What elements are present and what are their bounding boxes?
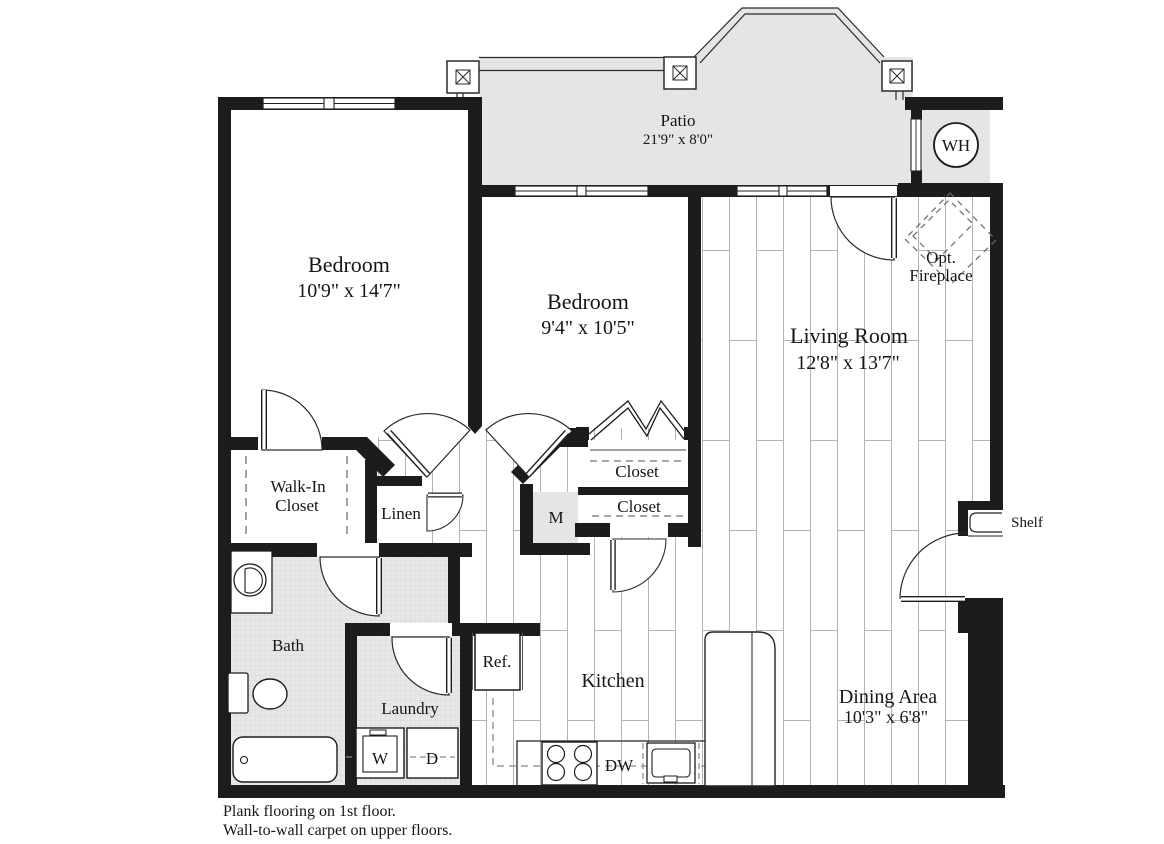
bedroom1-window (263, 98, 395, 109)
peninsula-counter (705, 632, 775, 786)
water-heater-access-panel (911, 119, 921, 171)
footnote-line2: Wall-to-wall carpet on upper floors. (223, 822, 452, 839)
vanity-sink (231, 551, 272, 613)
mechanical-bottom-wall (520, 543, 590, 555)
bath-alcove-right-wall (448, 557, 460, 623)
linen-label: Linen (381, 504, 421, 523)
patio-door-opening (830, 186, 897, 196)
mechanical-left-wall (520, 484, 533, 547)
dining-area-dims: 10'3" x 6'8" (844, 707, 928, 727)
bedroom2-right-wall (688, 197, 701, 447)
dishwasher-label: DW (605, 756, 634, 775)
bifold-right-jamb (684, 427, 697, 440)
kitchen-label: Kitchen (581, 670, 644, 692)
walk-in-closet-right-wall (365, 460, 377, 557)
floor-plan-page: Patio 21'9" x 8'0" Bedroom 10'9" x 14'7"… (0, 0, 1164, 844)
laundry-label: Laundry (381, 699, 439, 718)
patio-label: Patio (661, 111, 696, 130)
bifold-left-jamb (576, 427, 589, 440)
right-exterior-wall-lower (968, 630, 1003, 786)
closet-upper-label: Closet (615, 462, 659, 481)
sink (647, 743, 695, 783)
entry-door-opening (964, 537, 1003, 598)
bathtub (233, 737, 337, 782)
floor-plan-drawing: Patio 21'9" x 8'0" Bedroom 10'9" x 14'7"… (0, 0, 1164, 844)
refrigerator-label: Ref. (483, 652, 512, 671)
dryer-label: D (426, 749, 438, 768)
mechanical-label: M (548, 508, 563, 527)
washer-label: W (372, 749, 389, 768)
bottom-exterior-wall (218, 785, 1005, 798)
water-heater-label: WH (942, 136, 970, 155)
bedroom2-window (515, 186, 648, 196)
living-room-dims: 12'8" x 13'7" (796, 352, 900, 374)
living-room-label: Living Room (790, 323, 908, 348)
laundry-right-wall (460, 623, 472, 786)
entry-corner-wall (958, 597, 1003, 633)
water-heater-left-wall-upper (911, 97, 922, 120)
hall-closet-door-opening (610, 523, 668, 537)
footnote-line1: Plank flooring on 1st floor. (223, 803, 396, 820)
bedroom1-dims: 10'9" x 14'7" (297, 280, 401, 302)
shelf-label: Shelf (1011, 515, 1043, 531)
walk-in-closet-label-line2: Closet (275, 496, 319, 515)
range (542, 742, 597, 785)
laundry-fixtures (346, 728, 458, 778)
laundry-door-opening (390, 623, 452, 636)
laundry-left-wall (345, 623, 357, 786)
closet-divider-wall (578, 487, 701, 495)
bath-door-opening (317, 543, 379, 557)
bath-label: Bath (272, 636, 305, 655)
patio-column-middle (664, 57, 696, 89)
water-heater-bottom-wall (898, 183, 1003, 197)
living-room-window (737, 186, 827, 196)
patio-column-right (882, 61, 912, 91)
bedroom2-label: Bedroom (547, 289, 629, 314)
patio-column-left (447, 61, 479, 93)
bedroom1-label: Bedroom (308, 252, 390, 277)
linen-top-wall (377, 476, 422, 486)
bedroom-divider-wall (468, 97, 482, 418)
opt-fireplace-label-line1: Opt. (926, 248, 956, 267)
closet-lower-label: Closet (617, 497, 661, 516)
shelf-niche-left-wall (958, 501, 968, 536)
shelf-niche (968, 510, 1003, 536)
patio-dims: 21'9" x 8'0" (643, 132, 713, 148)
dining-area-label: Dining Area (839, 686, 937, 708)
opt-fireplace-label-line2: Fireplace (909, 266, 972, 285)
right-exterior-wall-upper (990, 185, 1003, 505)
walk-in-closet-label-line1: Walk-In (270, 477, 326, 496)
bedroom2-dims: 9'4" x 10'5" (541, 317, 635, 339)
